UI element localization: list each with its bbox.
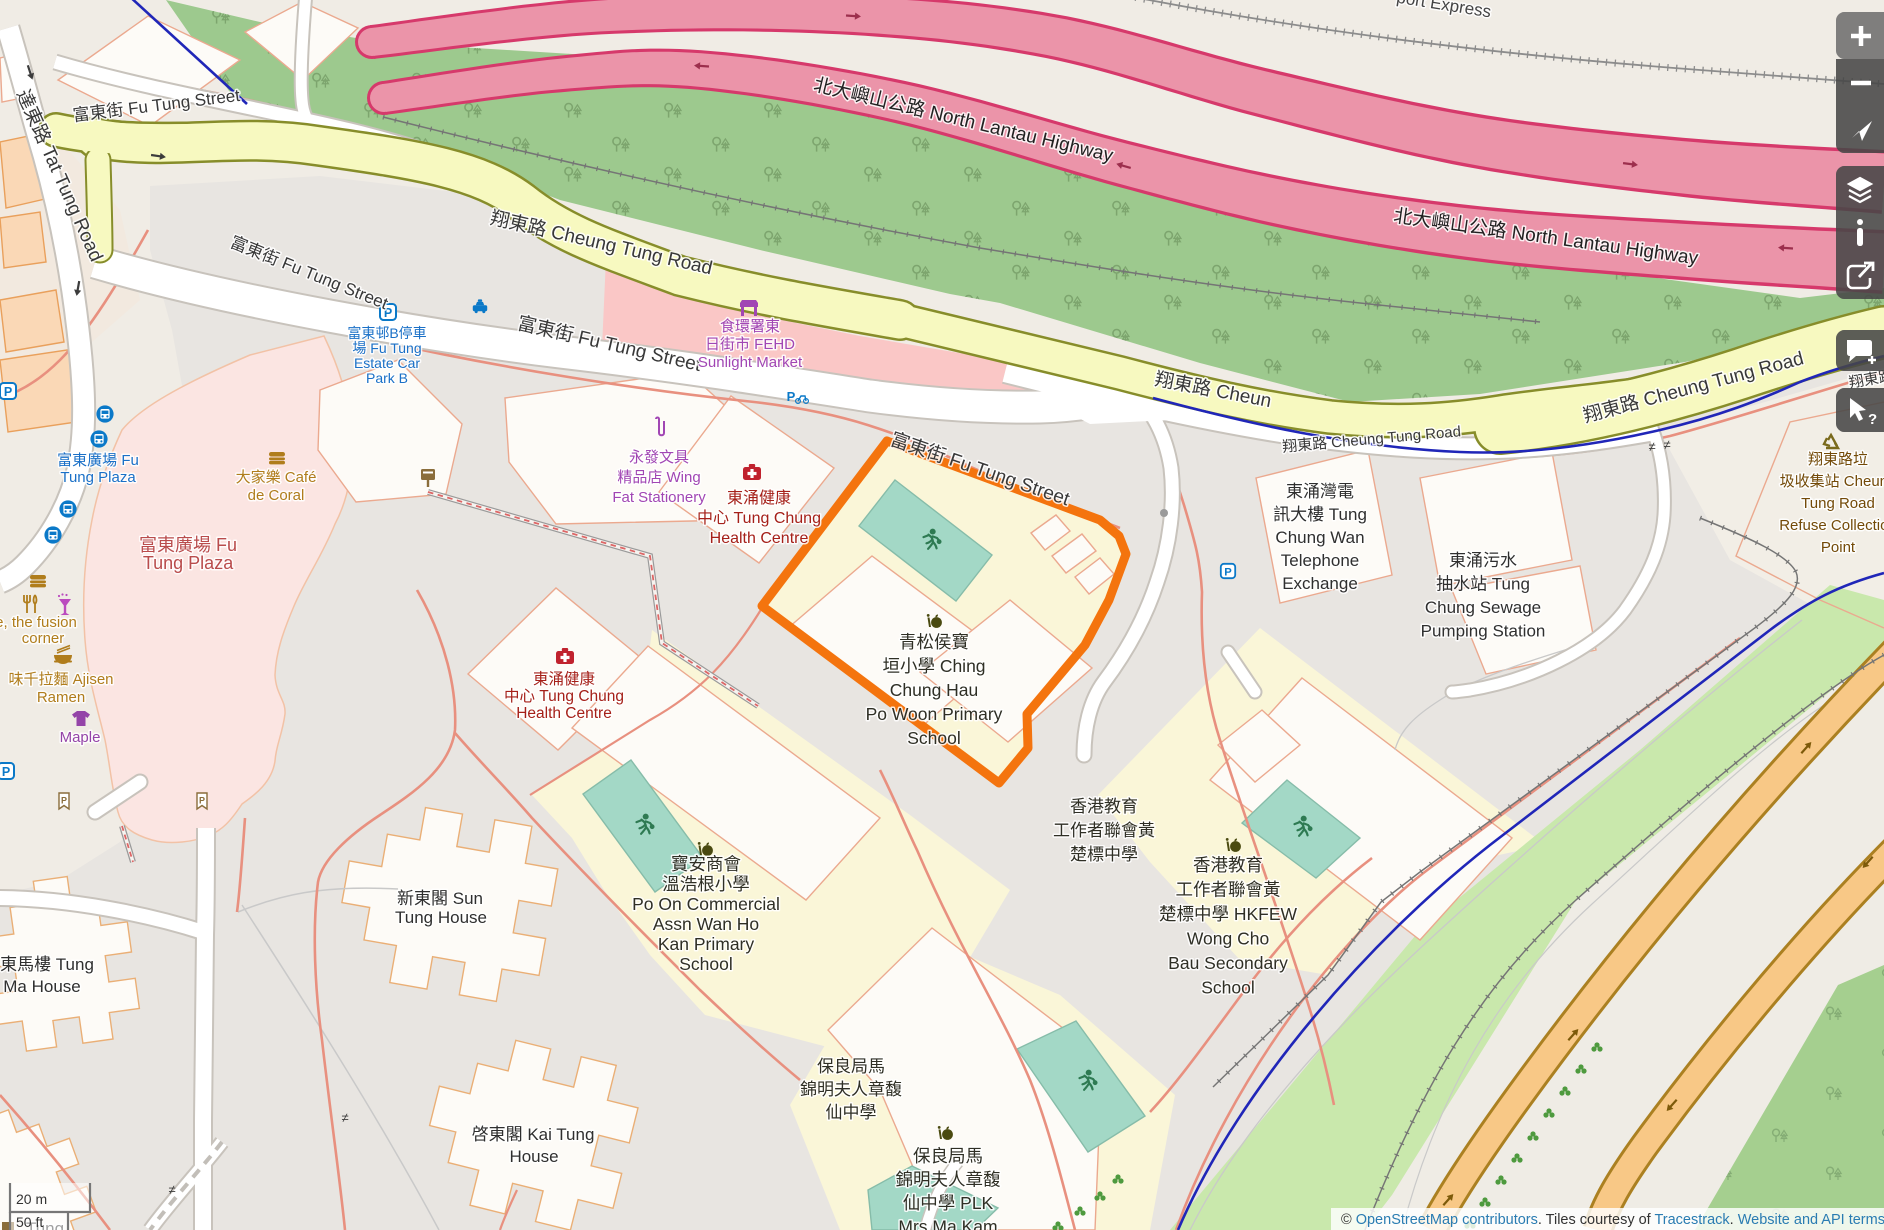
svg-text:圾收集站 Cheung: 圾收集站 Cheung xyxy=(1780,470,1884,491)
svg-text:Wong Cho: Wong Cho xyxy=(1187,926,1269,951)
svg-text:抽水站 Tung: 抽水站 Tung xyxy=(1436,570,1530,595)
svg-text:Tung House: Tung House xyxy=(395,903,487,928)
svg-text:Fat Stationery: Fat Stationery xyxy=(612,486,706,507)
svg-text:楚標中學: 楚標中學 xyxy=(1070,840,1138,865)
svg-text:Tung Plaza: Tung Plaza xyxy=(60,466,136,487)
svg-text:Ramen: Ramen xyxy=(37,686,85,707)
svg-text:工作者聯會黃: 工作者聯會黃 xyxy=(1053,816,1155,841)
svg-text:香港教育: 香港教育 xyxy=(1070,792,1138,817)
svg-text:Po Woon Primary: Po Woon Primary xyxy=(866,701,1003,726)
svg-text:Exchange: Exchange xyxy=(1282,569,1358,594)
svg-text:House: House xyxy=(509,1142,558,1167)
svg-text:School: School xyxy=(1201,975,1255,1000)
svg-text:Tung Road: Tung Road xyxy=(1801,492,1875,513)
svg-text:Mrs Ma Kam: Mrs Ma Kam xyxy=(898,1214,997,1230)
svg-text:Chung Hau: Chung Hau xyxy=(890,677,979,702)
svg-text:Health Centre: Health Centre xyxy=(516,701,612,723)
svg-text:Ma House: Ma House xyxy=(3,972,80,997)
svg-text:corner: corner xyxy=(22,627,65,648)
svg-text:保良局馬: 保良局馬 xyxy=(817,1052,885,1077)
svg-text:錦明夫人章馥: 錦明夫人章馥 xyxy=(800,1075,902,1100)
svg-text:Tung Plaza: Tung Plaza xyxy=(143,549,234,575)
svg-text:?: ? xyxy=(1868,411,1877,428)
svg-text:Park B: Park B xyxy=(366,368,408,388)
svg-text:訊大樓 Tung: 訊大樓 Tung xyxy=(1273,500,1367,525)
svg-text:錦明夫人章馥: 錦明夫人章馥 xyxy=(896,1167,1001,1192)
svg-text:50 ft: 50 ft xyxy=(16,1214,43,1230)
svg-text:永發文具: 永發文具 xyxy=(629,446,689,467)
svg-text:仙中學 PLK: 仙中學 PLK xyxy=(903,1190,994,1215)
svg-text:School: School xyxy=(907,725,961,750)
svg-text:P: P xyxy=(787,389,796,404)
svg-text:楚標中學 HKFEW: 楚標中學 HKFEW xyxy=(1159,901,1298,926)
svg-text:東涌污水: 東涌污水 xyxy=(1449,546,1517,571)
svg-text:東涌灣電: 東涌灣電 xyxy=(1286,477,1354,502)
svg-text:Maple: Maple xyxy=(60,726,101,747)
svg-text:Telephone: Telephone xyxy=(1281,546,1359,571)
svg-text:Point: Point xyxy=(1821,536,1856,557)
svg-text:翔東路垃: 翔東路垃 xyxy=(1808,448,1868,469)
svg-text:© OpenStreetMap contributors.: © OpenStreetMap contributors. Tiles cour… xyxy=(1341,1212,1884,1228)
svg-text:Chung Wan: Chung Wan xyxy=(1275,523,1364,548)
svg-text:保良局馬: 保良局馬 xyxy=(913,1143,983,1168)
svg-text:Chung Sewage: Chung Sewage xyxy=(1425,593,1541,618)
svg-text:香港教育: 香港教育 xyxy=(1193,852,1263,877)
svg-text:School: School xyxy=(679,951,733,976)
svg-text:精品店 Wing: 精品店 Wing xyxy=(617,466,700,487)
svg-text:垣小學 Ching: 垣小學 Ching xyxy=(882,653,985,678)
svg-text:Sunlight Market: Sunlight Market xyxy=(698,351,803,372)
svg-text:工作者聯會黃: 工作者聯會黃 xyxy=(1176,877,1281,902)
svg-text:Bau Secondary: Bau Secondary xyxy=(1168,950,1288,975)
svg-text:Health Centre: Health Centre xyxy=(710,524,809,548)
svg-text:青松侯寶: 青松侯寶 xyxy=(899,629,969,654)
svg-text:Refuse Collection: Refuse Collection xyxy=(1779,514,1884,535)
svg-text:仙中學: 仙中學 xyxy=(826,1098,877,1123)
svg-text:Pumping Station: Pumping Station xyxy=(1421,617,1546,642)
svg-text:20 m: 20 m xyxy=(16,1191,47,1207)
svg-text:de Coral: de Coral xyxy=(248,484,305,505)
